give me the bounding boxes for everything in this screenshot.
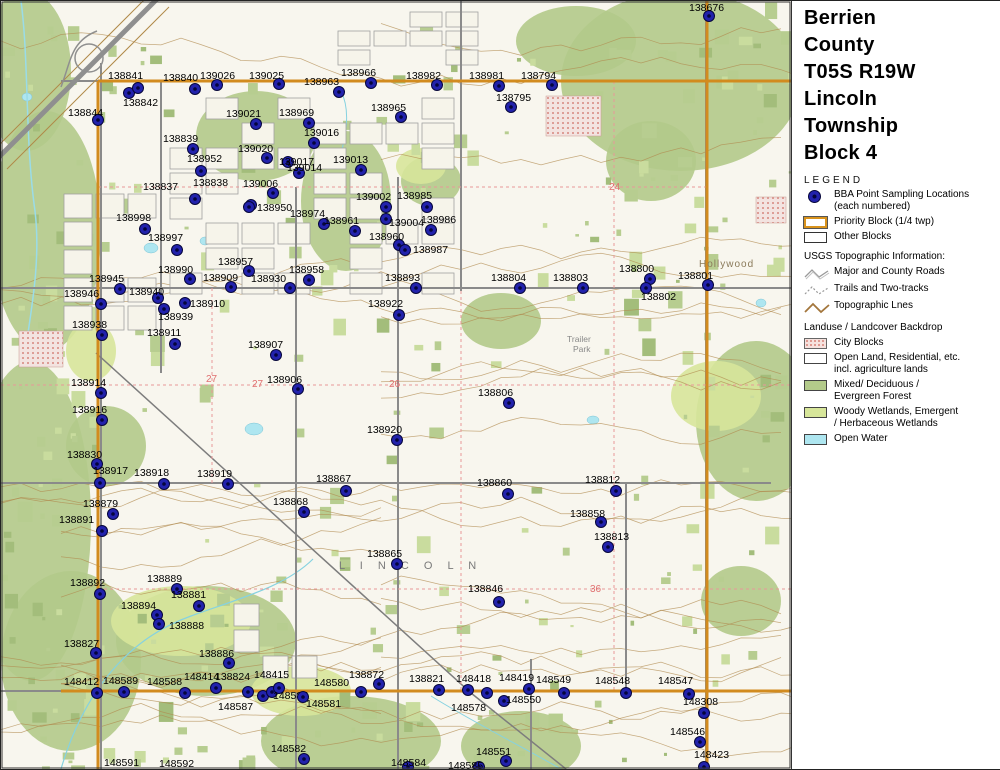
trails-line-glyph (804, 284, 830, 297)
water-rect-swatch (804, 434, 827, 445)
sampling-point-label: 148549 (536, 674, 571, 686)
legend-item-open-rect: Open Land, Residential, etc.incl. agricu… (804, 352, 1000, 376)
sampling-point-label: 138842 (123, 97, 158, 109)
sampling-point-label: 138889 (147, 573, 182, 585)
section-number: 36 (590, 584, 602, 595)
legend-item-label: City Blocks (834, 337, 883, 349)
legend-item-line: Evergreen Forest (834, 391, 919, 403)
sampling-point-label: 148582 (271, 743, 306, 755)
sampling-point-label: 148412 (64, 676, 99, 688)
sampling-point-label: 138795 (496, 92, 531, 104)
sampling-point-label: 138806 (478, 387, 513, 399)
legend-item-label: Priority Block (1/4 twp) (834, 216, 934, 228)
sampling-point-label: 148578 (451, 702, 486, 714)
legend-list: BBA Point Sampling Locations(each number… (804, 189, 1000, 445)
map-title-line: County (804, 32, 1000, 59)
map-title-line: Township (804, 113, 1000, 140)
sampling-point-label: 138858 (570, 508, 605, 520)
legend-heading: Landuse / Landcover Backdrop (804, 322, 1000, 334)
sampling-point-label: 139020 (238, 143, 273, 155)
sampling-point-label: 148308 (683, 696, 718, 708)
priority-rect-icon (804, 216, 834, 228)
trails-line-icon (804, 283, 834, 297)
legend-item-label: Open Water (834, 433, 888, 445)
sampling-point-label: 138960 (369, 231, 404, 243)
legend-item-line: Other Blocks (834, 231, 891, 243)
map-canvas[interactable]: L I N C O L NHollywoodTrailerPark 272726… (1, 1, 791, 769)
sampling-point-label: 148550 (506, 694, 541, 706)
sampling-point-label: 138868 (273, 496, 308, 508)
sampling-point-label: 138860 (477, 477, 512, 489)
legend-item-label: Trails and Two-tracks (834, 283, 928, 295)
sampling-point-label: 148580 (314, 677, 349, 689)
sampling-point-label: 138839 (163, 133, 198, 145)
sampling-point-label: 139021 (226, 108, 261, 120)
sampling-point-label: 138879 (83, 498, 118, 510)
sampling-point-label: 148415 (254, 669, 289, 681)
legend-item-trails-line: Trails and Two-tracks (804, 283, 1000, 297)
legend-item-label: Woody Wetlands, Emergent/ Herbaceous Wet… (834, 406, 958, 430)
sampling-point-label: 138982 (406, 70, 441, 82)
sampling-point-label: 138872 (349, 669, 384, 681)
sampling-point-label: 138958 (289, 264, 324, 276)
section-number: 26 (389, 379, 401, 390)
sampling-point-label: 138930 (251, 273, 286, 285)
legend-item-label: BBA Point Sampling Locations(each number… (834, 189, 969, 213)
sampling-point-label: 138985 (397, 190, 432, 202)
sampling-point-label: 139016 (304, 127, 339, 139)
map-title: BerrienCountyT05S R19WLincolnTownshipBlo… (792, 1, 1000, 167)
open-rect-swatch (804, 353, 827, 364)
other-rect-swatch (804, 232, 827, 243)
legend-item-line: / Herbaceous Wetlands (834, 418, 958, 430)
topo-line-glyph (804, 301, 830, 314)
legend-item-water-rect: Open Water (804, 433, 1000, 445)
bba-dot-swatch (808, 190, 821, 203)
sampling-point-label: 148581 (306, 698, 341, 710)
wetland-rect-icon (804, 406, 834, 418)
sampling-point-label: 148587 (218, 701, 253, 713)
sampling-point-label: 139002 (356, 191, 391, 203)
sampling-point-label: 148591 (104, 757, 139, 769)
sampling-point-label: 148414 (184, 671, 219, 683)
sampling-point-label: 138867 (316, 473, 351, 485)
legend-title: LEGEND (804, 175, 1000, 186)
legend-item-city-rect: City Blocks (804, 337, 1000, 349)
legend-item-wetland-rect: Woody Wetlands, Emergent/ Herbaceous Wet… (804, 406, 1000, 430)
sampling-point-label: 138963 (304, 76, 339, 88)
legend-heading: USGS Topographic Information: (804, 251, 1000, 263)
sampling-point-label: 138886 (199, 648, 234, 660)
forest-rect-swatch (804, 380, 827, 391)
sampling-point-label: 148584 (391, 757, 426, 769)
section-number: 27 (206, 374, 218, 385)
legend-item-line: Trails and Two-tracks (834, 283, 928, 295)
sampling-point-label: 138987 (413, 244, 448, 256)
sampling-point-label: 138957 (218, 256, 253, 268)
legend-item-line: BBA Point Sampling Locations (834, 189, 969, 201)
sampling-point-label: 138998 (116, 212, 151, 224)
legend-item-label: Major and County Roads (834, 266, 945, 278)
sampling-point-label: 138986 (421, 214, 456, 226)
legend-item-line: Topographic Lnes (834, 300, 913, 312)
sampling-point-label: 138830 (67, 449, 102, 461)
bba-dot-icon (804, 189, 834, 203)
place-label: Trailer (567, 334, 591, 344)
sampling-point-label: 138952 (187, 153, 222, 165)
city-rect-icon (804, 337, 834, 349)
sampling-point-label: 138997 (148, 232, 183, 244)
sampling-point-label: 148548 (595, 675, 630, 687)
sampling-point-label: 148589 (103, 675, 138, 687)
sampling-point-label: 138939 (158, 311, 193, 323)
map-title-line: Lincoln (804, 86, 1000, 113)
sampling-point-label: 138844 (68, 107, 103, 119)
sampling-point-label: 138803 (553, 272, 588, 284)
sampling-point-label: 138966 (341, 67, 376, 79)
bba-map-sheet: L I N C O L NHollywoodTrailerPark 272726… (0, 0, 1000, 770)
legend-item-line: Woody Wetlands, Emergent (834, 406, 958, 418)
sampling-point-label: 138909 (203, 272, 238, 284)
sampling-point-label: 148588 (147, 676, 182, 688)
sampling-point-label: 138840 (163, 72, 198, 84)
sampling-point-label: 138893 (385, 272, 420, 284)
topo-line-icon (804, 300, 834, 314)
water-rect-icon (804, 433, 834, 445)
legend-item-line: (each numbered) (834, 201, 969, 213)
sampling-point-label: 148418 (456, 673, 491, 685)
open-rect-icon (804, 352, 834, 364)
sampling-point-label: 139026 (200, 70, 235, 82)
legend-item-label: Open Land, Residential, etc.incl. agricu… (834, 352, 960, 376)
sampling-point-label: 138794 (521, 70, 556, 82)
sampling-point-label: 138838 (193, 177, 228, 189)
topo-map-svg: L I N C O L NHollywoodTrailerPark 272726… (1, 1, 791, 769)
sampling-point-label: 138938 (72, 319, 107, 331)
legend-item-label: Mixed/ Deciduous /Evergreen Forest (834, 379, 919, 403)
forest-rect-icon (804, 379, 834, 391)
sampling-point-label: 138910 (190, 298, 225, 310)
sampling-point-label: 138945 (89, 273, 124, 285)
sampling-point-label: 138800 (619, 263, 654, 275)
place-label: Hollywood (699, 259, 754, 270)
sampling-point-label: 139025 (249, 70, 284, 82)
sampling-point-label: 138916 (72, 404, 107, 416)
map-title-line: Block 4 (804, 140, 1000, 167)
sampling-point-label: 138950 (257, 202, 292, 214)
wetland-rect-swatch (804, 407, 827, 418)
info-panel: BerrienCountyT05S R19WLincolnTownshipBlo… (791, 1, 1000, 769)
sampling-point-label: 138918 (134, 467, 169, 479)
sampling-point-label: 139006 (243, 178, 278, 190)
legend-item-line: Major and County Roads (834, 266, 945, 278)
legend-item-other-rect: Other Blocks (804, 231, 1000, 243)
sampling-point-label: 138802 (641, 291, 676, 303)
sampling-point-label: 148547 (658, 675, 693, 687)
section-number: 24 (609, 182, 621, 193)
legend-item-label: Other Blocks (834, 231, 891, 243)
sampling-point-label: 138824 (215, 671, 250, 683)
sampling-point-label: 138821 (409, 673, 444, 685)
sampling-point-label: 138813 (594, 531, 629, 543)
place-label: Park (573, 344, 591, 354)
sampling-point-label: 138920 (367, 424, 402, 436)
sampling-point-label: 138812 (585, 474, 620, 486)
legend-item-label: Topographic Lnes (834, 300, 913, 312)
map-title-line: Berrien (804, 5, 1000, 32)
section-number: 27 (252, 379, 264, 390)
sampling-point-label: 138881 (171, 589, 206, 601)
sampling-point-label: 138801 (678, 270, 713, 282)
sampling-point-label: 138914 (71, 377, 106, 389)
sampling-point-label: 138922 (368, 298, 403, 310)
sampling-point-label: 138837 (143, 181, 178, 193)
sampling-point-label: 138888 (169, 620, 204, 632)
roads-line-glyph (804, 267, 830, 280)
city-rect-swatch (804, 338, 827, 349)
sampling-point-label: 148419 (499, 672, 534, 684)
sampling-point-label: 138906 (267, 374, 302, 386)
sampling-point-label: 138907 (248, 339, 283, 351)
sampling-point-label: 138961 (324, 215, 359, 227)
sampling-point-label: 138919 (197, 468, 232, 480)
sampling-point-label: 138804 (491, 272, 526, 284)
priority-rect-swatch (804, 217, 827, 228)
legend-item-line: City Blocks (834, 337, 883, 349)
legend-item-topo-line: Topographic Lnes (804, 300, 1000, 314)
sampling-point-label: 138841 (108, 70, 143, 82)
sampling-point-label: 148546 (670, 726, 705, 738)
sampling-point-label: 138827 (64, 638, 99, 650)
sampling-point-label: 138917 (93, 465, 128, 477)
legend-item-line: Open Land, Residential, etc. (834, 352, 960, 364)
other-rect-icon (804, 231, 834, 243)
sampling-point-label: 138990 (158, 264, 193, 276)
sampling-point-label: 148551 (476, 746, 511, 758)
sampling-point-label: 148592 (159, 758, 194, 769)
sampling-point-label: 138846 (468, 583, 503, 595)
legend-item-priority-rect: Priority Block (1/4 twp) (804, 216, 1000, 228)
place-label: L I N C O L N (339, 560, 482, 572)
sampling-point-label: 138676 (689, 2, 724, 14)
sampling-point-label: 138894 (121, 600, 156, 612)
sampling-point-label: 138946 (64, 288, 99, 300)
sampling-point-label: 138965 (371, 102, 406, 114)
sampling-point-label: 138911 (147, 327, 181, 339)
legend-item-line: incl. agriculture lands (834, 364, 960, 376)
legend-item-line: Open Water (834, 433, 888, 445)
sampling-point-label: 138891 (59, 514, 94, 526)
map-title-line: T05S R19W (804, 59, 1000, 86)
legend-item-bba-dot: BBA Point Sampling Locations(each number… (804, 189, 1000, 213)
sampling-point-label: 139014 (287, 162, 322, 174)
sampling-point-label: 138974 (290, 208, 325, 220)
sampling-point-label: 138969 (279, 107, 314, 119)
sampling-point-label: 139004 (389, 217, 424, 229)
sampling-point-label: 139013 (333, 154, 368, 166)
roads-line-icon (804, 266, 834, 280)
sampling-point-label: 138940 (129, 286, 164, 298)
legend-item-roads-line: Major and County Roads (804, 266, 1000, 280)
legend-item-line: Mixed/ Deciduous / (834, 379, 919, 391)
legend-item-line: Priority Block (1/4 twp) (834, 216, 934, 228)
sampling-point-label: 138865 (367, 548, 402, 560)
legend-item-forest-rect: Mixed/ Deciduous /Evergreen Forest (804, 379, 1000, 403)
sampling-point-label: 138981 (469, 70, 504, 82)
sampling-point-label: 138892 (70, 577, 105, 589)
sampling-point-label: 148423 (694, 749, 729, 761)
